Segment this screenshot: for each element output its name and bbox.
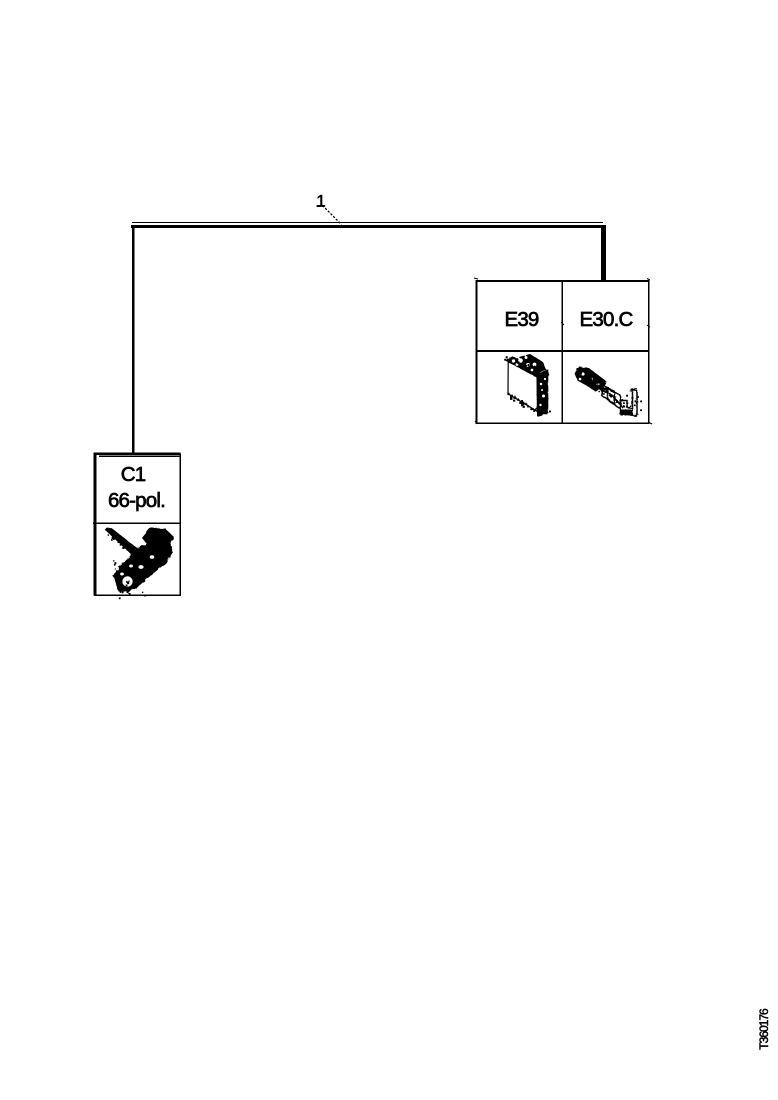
svg-text:1: 1 — [316, 192, 325, 211]
svg-text:66-pol.: 66-pol. — [108, 489, 165, 512]
svg-text:E30.C: E30.C — [580, 308, 634, 331]
svg-text:C1: C1 — [121, 463, 146, 486]
svg-text:E39: E39 — [504, 308, 538, 331]
svg-text:T360176: T360176 — [757, 1008, 771, 1050]
